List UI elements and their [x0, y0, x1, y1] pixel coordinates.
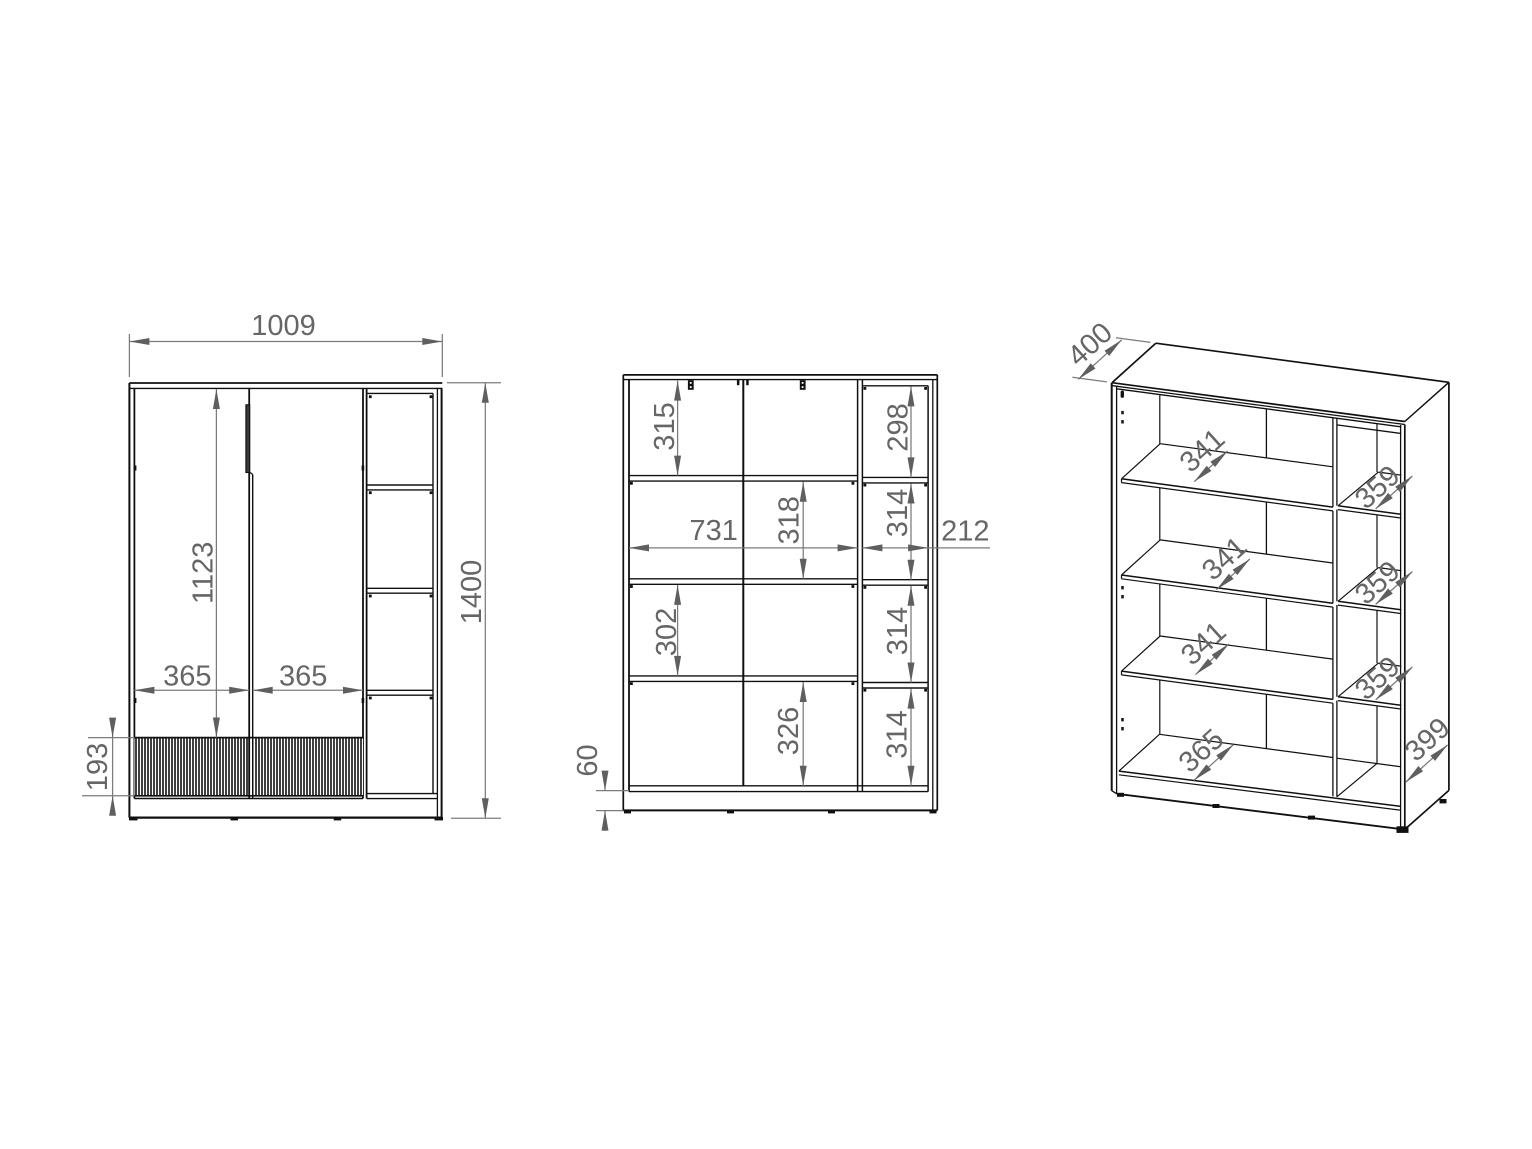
svg-text:193: 193: [82, 743, 114, 791]
svg-text:314: 314: [881, 710, 913, 758]
svg-text:365: 365: [279, 660, 327, 692]
svg-text:60: 60: [572, 744, 604, 776]
svg-text:298: 298: [882, 403, 914, 451]
svg-text:314: 314: [882, 489, 914, 537]
svg-text:1400: 1400: [456, 560, 488, 625]
svg-text:1009: 1009: [251, 310, 316, 342]
svg-text:212: 212: [941, 515, 989, 547]
svg-text:302: 302: [651, 608, 683, 656]
svg-text:326: 326: [773, 707, 805, 755]
svg-text:318: 318: [773, 496, 805, 544]
svg-text:365: 365: [163, 660, 211, 692]
svg-text:314: 314: [882, 607, 914, 655]
svg-text:315: 315: [649, 402, 681, 450]
svg-text:1123: 1123: [187, 542, 219, 604]
svg-text:731: 731: [690, 515, 738, 547]
